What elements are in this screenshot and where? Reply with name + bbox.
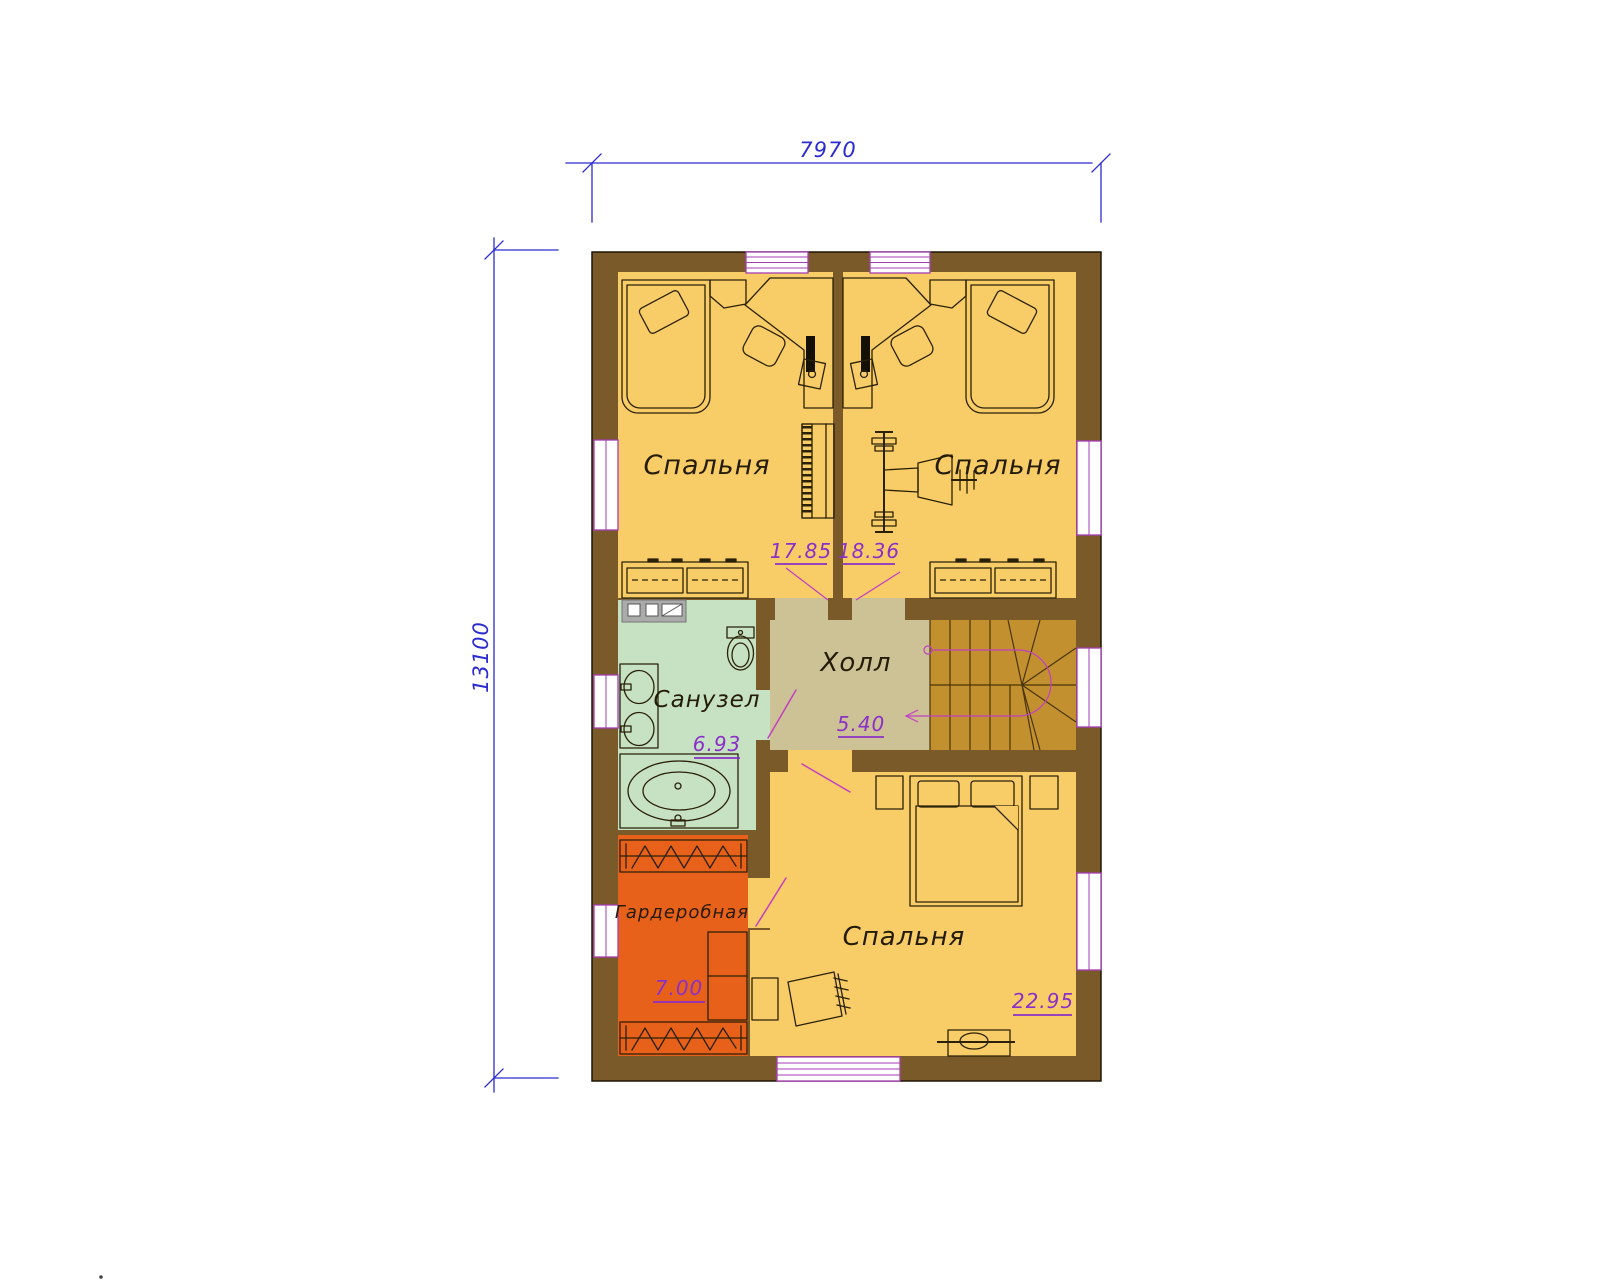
floor-plan-drawing: 7970 13100 xyxy=(0,0,1600,1280)
artifact-dot xyxy=(99,1275,103,1279)
doorway-bedroom-right xyxy=(852,598,905,620)
room-area-wardrobe: 7.00 xyxy=(653,976,705,1002)
window-top-left xyxy=(746,252,808,273)
doorway-bedroom-master xyxy=(788,750,852,772)
room-area-bedroom-left: 17.85 xyxy=(770,539,832,564)
room-label-wardrobe: Гардеробная xyxy=(615,902,749,923)
room-label-hall: Холл xyxy=(819,648,892,678)
svg-text:6.93: 6.93 xyxy=(693,732,742,756)
doorway-bedroom-left xyxy=(775,598,828,620)
room-bedroom-master-floor xyxy=(770,772,1076,1056)
room-area-hall: 5.40 xyxy=(837,712,886,737)
floor-plan-canvas: 7970 13100 xyxy=(0,0,1600,1280)
room-label-bathroom: Санузел xyxy=(654,687,761,713)
svg-text:17.85: 17.85 xyxy=(770,539,832,563)
window-bottom xyxy=(777,1057,900,1081)
room-area-bedroom-right: 18.36 xyxy=(838,539,900,564)
room-bedroom-master-floor-step xyxy=(750,930,770,1056)
svg-text:5.40: 5.40 xyxy=(837,712,886,736)
dimension-height-label: 13100 xyxy=(469,621,493,693)
room-wardrobe-floor xyxy=(618,835,748,1056)
svg-text:22.95: 22.95 xyxy=(1012,989,1074,1013)
svg-text:7.00: 7.00 xyxy=(655,976,704,1000)
dimension-left: 13100 xyxy=(469,238,558,1092)
dimension-width-label: 7970 xyxy=(799,138,856,162)
vanity-unit xyxy=(622,600,686,622)
window-right-master xyxy=(1077,873,1101,970)
dimension-top: 7970 xyxy=(566,138,1110,222)
window-top-right xyxy=(870,252,930,273)
svg-text:18.36: 18.36 xyxy=(838,539,900,563)
room-area-bathroom: 6.93 xyxy=(693,732,742,758)
room-bathroom-floor xyxy=(618,600,756,830)
room-label-bedroom-master: Спальня xyxy=(843,922,966,952)
window-left-bedroom xyxy=(594,440,618,530)
room-label-bedroom-left: Спальня xyxy=(643,450,770,481)
room-label-bedroom-right: Спальня xyxy=(934,450,1061,481)
room-area-bedroom-master: 22.95 xyxy=(1012,989,1074,1015)
window-right-stairs xyxy=(1077,648,1101,727)
window-left-bathroom xyxy=(594,675,618,728)
window-right-bedroom xyxy=(1077,441,1101,535)
